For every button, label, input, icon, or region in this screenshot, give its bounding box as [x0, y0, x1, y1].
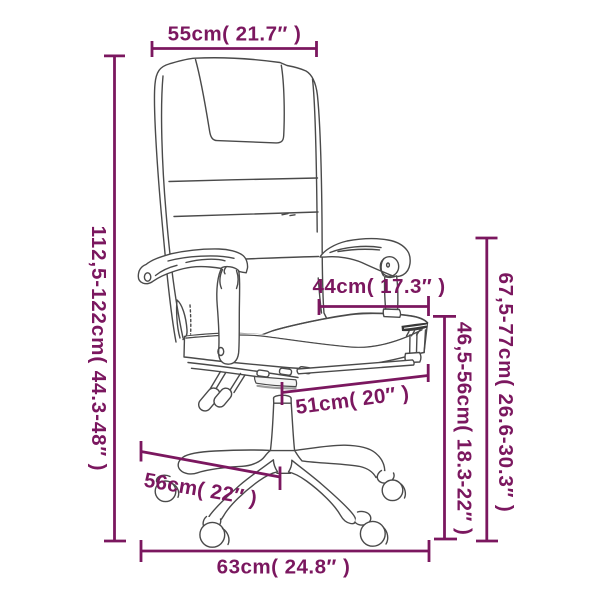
svg-text:44cm( 17.3″ ): 44cm( 17.3″ ): [313, 275, 446, 298]
svg-text:63cm( 24.8″ ): 63cm( 24.8″ ): [217, 556, 351, 579]
svg-text:67,5-77cm( 26.6-30.3″ ): 67,5-77cm( 26.6-30.3″ ): [494, 272, 517, 512]
svg-text:46,5-56cm( 18.3-22″ ): 46,5-56cm( 18.3-22″ ): [453, 322, 476, 536]
svg-text:55cm( 21.7″ ): 55cm( 21.7″ ): [168, 23, 302, 46]
svg-text:112,5-122cm( 44.3-48″ ): 112,5-122cm( 44.3-48″ ): [87, 226, 110, 472]
